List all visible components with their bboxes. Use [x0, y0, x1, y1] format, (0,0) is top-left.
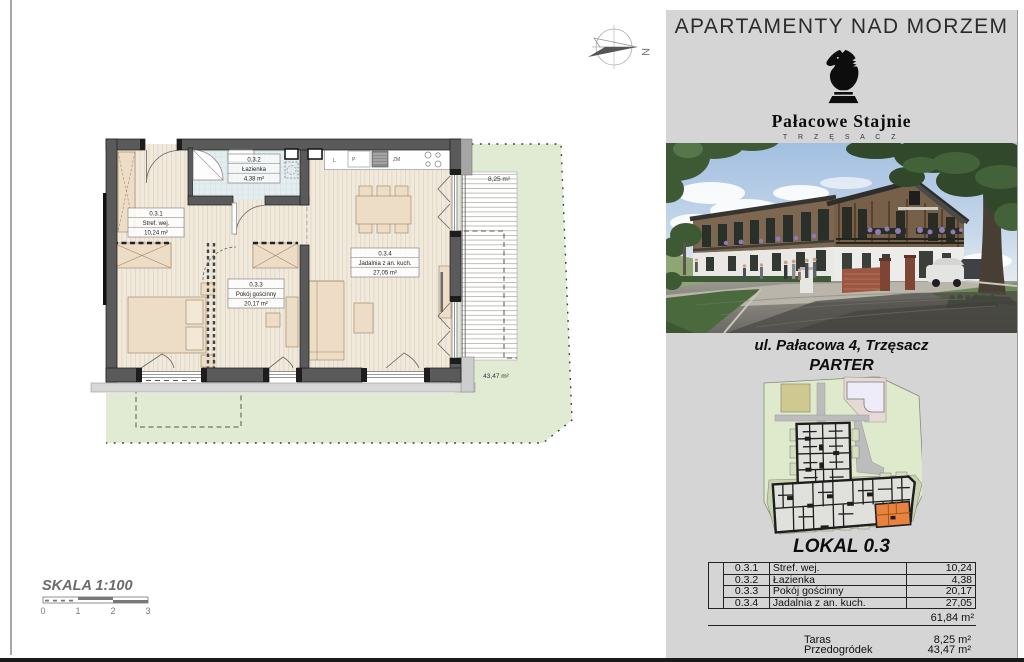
svg-text:43,47 m²: 43,47 m²: [483, 373, 509, 380]
svg-text:2: 2: [110, 606, 115, 616]
svg-text:Stref. wej.: Stref. wej.: [143, 221, 170, 227]
svg-text:4,38 m²: 4,38 m²: [244, 177, 264, 183]
svg-text:27,05 m²: 27,05 m²: [373, 271, 397, 277]
svg-text:L: L: [333, 158, 336, 164]
svg-text:20,17 m²: 20,17 m²: [244, 302, 268, 308]
svg-text:0.3.4: 0.3.4: [378, 251, 392, 257]
svg-text:Łazienka: Łazienka: [242, 167, 267, 173]
svg-text:0: 0: [40, 606, 45, 616]
svg-text:Jadalnia z an. kuch.: Jadalnia z an. kuch.: [358, 261, 411, 267]
svg-text:0.3.3: 0.3.3: [249, 282, 263, 288]
svg-text:ZM: ZM: [393, 157, 400, 163]
svg-text:3: 3: [145, 606, 150, 616]
svg-text:1: 1: [75, 606, 80, 616]
svg-text:0.3.2: 0.3.2: [247, 157, 261, 163]
svg-text:Pokój gościnny: Pokój gościnny: [236, 292, 276, 298]
svg-text:N: N: [639, 48, 651, 56]
svg-text:SKALA 1:100: SKALA 1:100: [42, 578, 133, 594]
svg-text:8,25 m²: 8,25 m²: [488, 176, 511, 183]
svg-text:10,24 m²: 10,24 m²: [144, 231, 168, 237]
svg-text:0.3.1: 0.3.1: [149, 211, 163, 217]
